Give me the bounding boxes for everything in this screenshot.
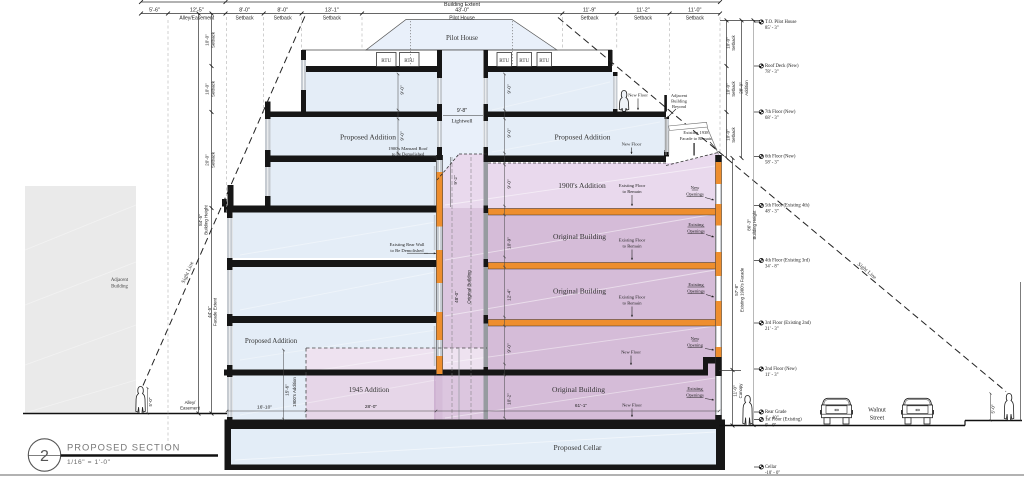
svg-text:Openings: Openings <box>687 229 705 234</box>
svg-text:Alley/Easement: Alley/Easement <box>179 16 214 22</box>
svg-text:Addition: Addition <box>744 80 749 96</box>
svg-text:16'-10": 16'-10" <box>257 405 272 411</box>
svg-text:9'-2": 9'-2" <box>453 175 458 185</box>
svg-text:4th Floor (Existing 3rd): 4th Floor (Existing 3rd) <box>765 259 810 264</box>
svg-text:RTU: RTU <box>539 58 549 64</box>
svg-text:Building Extent: Building Extent <box>444 2 480 8</box>
svg-text:Street: Street <box>870 415 885 422</box>
svg-text:Openings: Openings <box>686 192 704 197</box>
svg-text:48'-0": 48'-0" <box>454 291 459 303</box>
svg-text:Original Building: Original Building <box>552 385 605 394</box>
svg-text:1/16" = 1'-0": 1/16" = 1'-0" <box>67 459 111 466</box>
svg-text:1st Floor (Existing): 1st Floor (Existing) <box>765 418 802 423</box>
svg-text:Walnut: Walnut <box>868 407 886 414</box>
svg-text:10'-0": 10'-0" <box>205 83 210 95</box>
svg-text:Setback: Setback <box>211 31 216 48</box>
svg-text:Alley/: Alley/ <box>185 400 197 405</box>
svg-text:Facade Extent: Facade Extent <box>213 297 218 326</box>
svg-text:New Floor: New Floor <box>621 350 641 355</box>
svg-text:Building: Building <box>111 285 128 290</box>
svg-text:12'-5": 12'-5" <box>190 8 204 14</box>
svg-text:Setback: Setback <box>686 16 705 22</box>
svg-text:Openings: Openings <box>687 289 705 294</box>
svg-text:Existing Floor: Existing Floor <box>619 183 646 188</box>
svg-text:Pilot House: Pilot House <box>446 35 478 42</box>
svg-text:Setback: Setback <box>236 16 255 22</box>
svg-text:11'-2": 11'-2" <box>636 8 649 14</box>
svg-text:Openings: Openings <box>686 393 704 398</box>
svg-text:Setback: Setback <box>323 16 342 22</box>
svg-text:8'-0": 8'-0" <box>239 8 250 14</box>
svg-text:68' - 3": 68' - 3" <box>765 116 779 121</box>
svg-text:RTU: RTU <box>499 58 509 64</box>
svg-text:New Floor: New Floor <box>628 93 648 98</box>
svg-text:Building Height: Building Height <box>204 204 209 234</box>
svg-text:to Remain: to Remain <box>622 244 642 249</box>
svg-text:Original Building: Original Building <box>467 270 472 304</box>
svg-text:48' - 3": 48' - 3" <box>765 209 779 214</box>
svg-text:Setback: Setback <box>731 34 736 50</box>
svg-text:Setback: Setback <box>274 16 293 22</box>
svg-text:Beyond: Beyond <box>672 104 687 109</box>
svg-text:Original Building: Original Building <box>553 232 606 241</box>
svg-text:12'-4": 12'-4" <box>507 289 512 301</box>
svg-text:15'-6": 15'-6" <box>285 384 290 396</box>
svg-text:Lightwell: Lightwell <box>452 119 473 125</box>
svg-text:10'-0": 10'-0" <box>726 83 731 95</box>
svg-text:2nd Floor (New): 2nd Floor (New) <box>765 367 797 372</box>
svg-text:New Floor: New Floor <box>622 403 642 408</box>
svg-text:20'-0": 20'-0" <box>205 154 210 166</box>
svg-text:Rear Grade: Rear Grade <box>765 410 786 415</box>
svg-text:85' - 3": 85' - 3" <box>765 26 779 31</box>
svg-text:10'-9": 10'-9" <box>507 237 512 249</box>
svg-text:9'-0": 9'-0" <box>507 84 512 94</box>
svg-text:Setback: Setback <box>211 151 216 168</box>
svg-text:10'-2": 10'-2" <box>507 393 512 405</box>
svg-text:58' - 3": 58' - 3" <box>765 160 779 165</box>
svg-text:Setback: Setback <box>580 16 599 22</box>
svg-text:New Floor: New Floor <box>622 142 642 147</box>
svg-text:6th Floor (New): 6th Floor (New) <box>765 155 796 160</box>
svg-text:9'-0": 9'-0" <box>507 343 512 353</box>
svg-text:13'-1": 13'-1" <box>325 8 339 14</box>
svg-text:to be Demolished: to be Demolished <box>392 152 425 157</box>
svg-text:Proposed Addition: Proposed Addition <box>554 133 610 142</box>
svg-text:Existing 1900's Facade: Existing 1900's Facade <box>740 267 745 312</box>
svg-text:11'-9": 11'-9" <box>583 8 596 14</box>
svg-text:21' - 3": 21' - 3" <box>765 327 779 332</box>
svg-text:Setback: Setback <box>211 80 216 97</box>
svg-text:Proposed Addition: Proposed Addition <box>340 133 396 142</box>
svg-text:10'-0": 10'-0" <box>726 37 731 49</box>
svg-text:9'-0": 9'-0" <box>400 85 405 95</box>
svg-text:Setback: Setback <box>731 126 736 142</box>
svg-text:Setback: Setback <box>634 16 653 22</box>
svg-text:10'-0": 10'-0" <box>726 129 731 141</box>
svg-text:28'-9": 28'-9" <box>739 82 744 94</box>
svg-text:Existing Floor: Existing Floor <box>619 238 646 243</box>
svg-text:84'-5": 84'-5" <box>198 214 203 226</box>
svg-text:Existing Floor: Existing Floor <box>619 295 646 300</box>
svg-text:10'-0": 10'-0" <box>205 34 210 46</box>
svg-text:11'-0": 11'-0" <box>733 385 738 397</box>
svg-text:New: New <box>691 185 700 190</box>
svg-text:43'-0": 43'-0" <box>455 8 469 14</box>
svg-text:1900's Mansard Roof: 1900's Mansard Roof <box>388 146 428 151</box>
svg-text:8'-0": 8'-0" <box>277 8 288 14</box>
svg-text:9'-0": 9'-0" <box>507 128 512 138</box>
svg-text:Existing Rear Wall: Existing Rear Wall <box>390 242 425 247</box>
svg-text:5'-6": 5'-6" <box>149 8 160 14</box>
svg-text:T.O. Pilot House: T.O. Pilot House <box>765 20 796 25</box>
svg-text:9'-0": 9'-0" <box>400 131 405 141</box>
svg-text:Adjacent: Adjacent <box>671 93 688 98</box>
svg-text:9'-8": 9'-8" <box>457 108 467 114</box>
svg-text:RTU: RTU <box>519 58 529 64</box>
svg-text:11' - 3": 11' - 3" <box>765 373 779 378</box>
svg-text:Proposed Addition: Proposed Addition <box>245 337 298 345</box>
svg-text:RTU: RTU <box>381 58 391 64</box>
svg-text:Opening: Opening <box>687 343 704 348</box>
svg-text:5'-0": 5'-0" <box>991 404 996 413</box>
svg-text:9'-0": 9'-0" <box>507 179 512 189</box>
svg-text:RTU: RTU <box>404 58 414 64</box>
svg-text:57'-8": 57'-8" <box>734 284 739 296</box>
svg-text:Canopy: Canopy <box>738 383 743 399</box>
svg-text:Building: Building <box>671 99 688 104</box>
svg-text:1900's Addition: 1900's Addition <box>558 181 606 190</box>
svg-text:Existing: Existing <box>687 386 703 391</box>
svg-text:78' - 3": 78' - 3" <box>765 70 779 75</box>
svg-text:PROPOSED SECTION: PROPOSED SECTION <box>67 442 180 453</box>
svg-text:5'-0": 5'-0" <box>148 397 153 406</box>
svg-text:Adjacent: Adjacent <box>111 278 129 283</box>
svg-text:Pilot House: Pilot House <box>449 16 475 22</box>
svg-text:5th Floor (Existing 4th): 5th Floor (Existing 4th) <box>765 204 810 209</box>
svg-text:Existing 1938: Existing 1938 <box>683 130 709 135</box>
svg-text:to Remain: to Remain <box>622 189 642 194</box>
svg-text:Easement: Easement <box>180 406 201 411</box>
svg-text:Cellar: Cellar <box>765 465 777 470</box>
svg-text:34' - 8": 34' - 8" <box>765 264 779 269</box>
svg-text:2: 2 <box>40 448 49 465</box>
svg-text:Roof Deck (New): Roof Deck (New) <box>765 64 799 69</box>
svg-text:86'-3": 86'-3" <box>747 219 752 231</box>
svg-text:Existing: Existing <box>688 282 704 287</box>
svg-text:Existing: Existing <box>688 222 704 227</box>
svg-text:Building Height: Building Height <box>752 210 757 240</box>
svg-text:to Remain: to Remain <box>622 301 642 306</box>
svg-text:44'-5": 44'-5" <box>207 306 212 318</box>
svg-text:New: New <box>691 336 700 341</box>
svg-text:11'-0": 11'-0" <box>688 8 701 14</box>
svg-text:Proposed Cellar: Proposed Cellar <box>553 443 602 452</box>
svg-text:28'-0": 28'-0" <box>365 404 378 410</box>
svg-text:Original Building: Original Building <box>553 287 606 296</box>
svg-text:61'-1": 61'-1" <box>575 403 588 409</box>
svg-text:Facade to Remain: Facade to Remain <box>680 136 713 141</box>
svg-text:1945 Addition: 1945 Addition <box>349 386 390 394</box>
svg-text:3rd Floor (Existing 2nd): 3rd Floor (Existing 2nd) <box>765 321 811 326</box>
svg-text:1900's Addition: 1900's Addition <box>292 377 297 407</box>
svg-text:Setback: Setback <box>731 80 736 96</box>
svg-text:to Be Demolished: to Be Demolished <box>390 248 424 253</box>
svg-text:7th Floor (New): 7th Floor (New) <box>765 110 796 115</box>
